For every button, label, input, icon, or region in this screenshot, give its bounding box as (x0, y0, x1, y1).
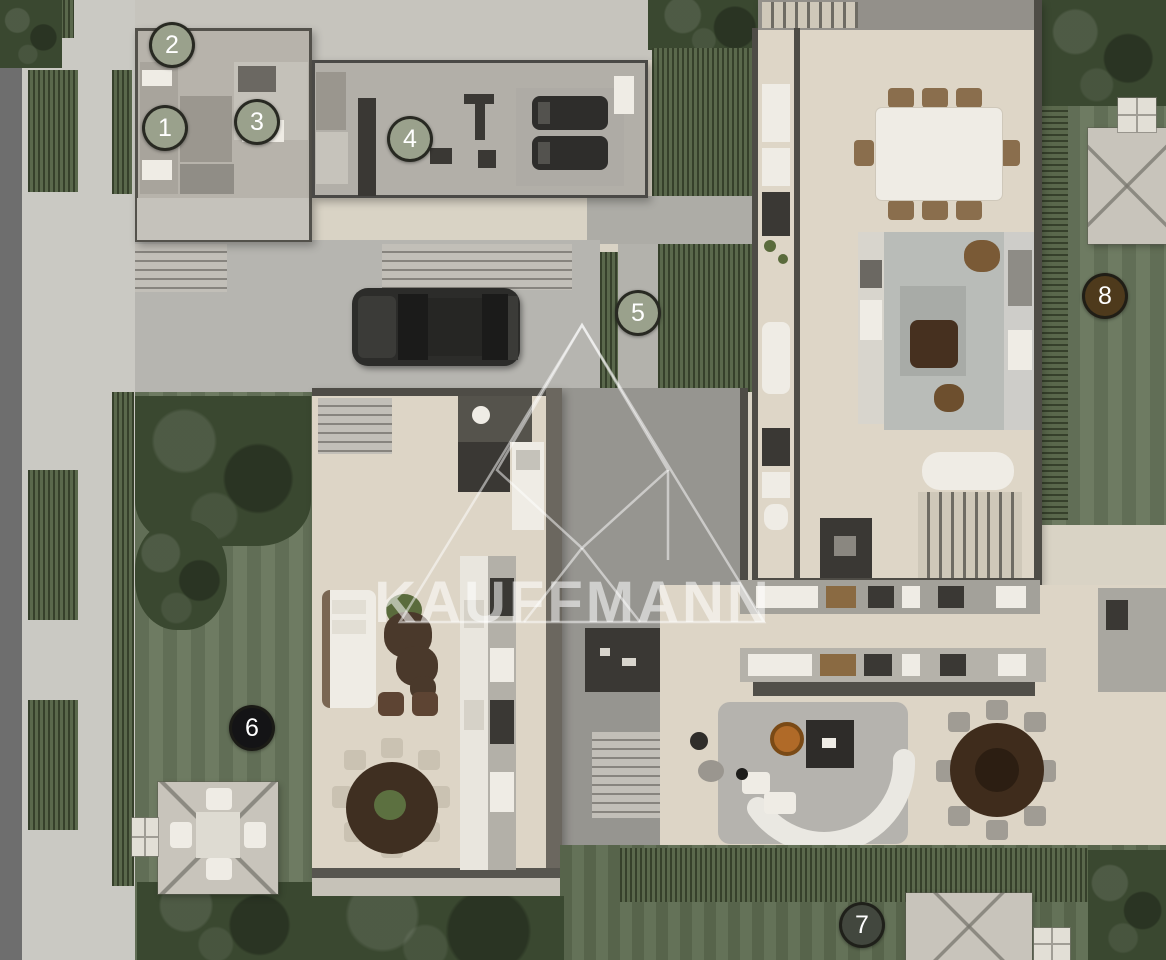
hedge (28, 70, 78, 192)
tree-canopy (1040, 0, 1166, 106)
gate (614, 76, 634, 114)
furniture-block (600, 648, 610, 656)
appliance (820, 654, 856, 676)
sofa-cushion (332, 620, 366, 634)
dining-chair (956, 200, 982, 220)
hedge (658, 244, 758, 392)
dining-chair (381, 738, 403, 758)
dining-chair (418, 750, 440, 770)
hedge (1038, 106, 1068, 520)
sofa-back (322, 590, 330, 708)
marker-2-label: 2 (165, 33, 179, 58)
dining-chair (986, 700, 1008, 720)
pergola-table (196, 812, 240, 858)
gym-equipment-icon (478, 150, 496, 168)
appliance (860, 300, 882, 340)
stairs (135, 244, 227, 292)
wall (358, 98, 376, 196)
wall (740, 388, 748, 600)
wall (794, 28, 800, 585)
counter-item (464, 600, 484, 628)
appliance (902, 586, 920, 608)
appliance (762, 148, 790, 186)
bathroom-block (458, 396, 532, 442)
counter-item (464, 700, 484, 730)
marker-5-label: 5 (631, 301, 645, 326)
toilet (764, 504, 788, 530)
dining-chair (344, 750, 366, 770)
appliance (998, 654, 1026, 676)
marker-6[interactable]: 6 (229, 705, 275, 751)
bushes (312, 896, 564, 960)
wall (312, 388, 562, 396)
street (0, 0, 22, 960)
hedge (652, 48, 758, 196)
dining-table (876, 108, 1002, 200)
appliance (1008, 330, 1032, 370)
appliance (864, 654, 892, 676)
marker-7[interactable]: 7 (839, 902, 885, 948)
parked-car-windshield (538, 102, 550, 124)
pergola (1088, 128, 1166, 244)
dining-chair (986, 820, 1008, 840)
pergola (906, 893, 1032, 960)
sink (472, 406, 490, 424)
wall (753, 682, 1035, 696)
gym-rack-icon (475, 104, 485, 140)
car-windshield (482, 294, 508, 360)
wall (1034, 0, 1042, 588)
dining-chair (1024, 712, 1046, 732)
table-inner (975, 748, 1019, 792)
plant (764, 240, 776, 252)
pergola-chair (206, 788, 232, 810)
appliance (1008, 250, 1032, 306)
room (316, 72, 346, 130)
deck-upper (562, 388, 748, 600)
marker-4[interactable]: 4 (387, 116, 433, 162)
table-decor (822, 738, 836, 748)
dining-chair (854, 140, 874, 166)
appliance (860, 260, 882, 288)
appliance (868, 586, 894, 608)
car-hood (508, 296, 518, 360)
pouf (412, 692, 438, 716)
pergola-chair (206, 858, 232, 880)
pergola-chair (170, 822, 192, 848)
stairs (318, 398, 392, 454)
wall (752, 28, 758, 585)
tree-canopy (135, 520, 227, 630)
pergola-chair (244, 822, 266, 848)
stairs (762, 2, 858, 28)
appliance (762, 84, 790, 142)
garden-table (1034, 928, 1070, 960)
furniture-block (622, 658, 636, 666)
hedge (112, 70, 132, 194)
side-table (698, 760, 724, 782)
fire-pit (770, 722, 804, 756)
closet-block (458, 442, 510, 492)
wall (546, 388, 562, 880)
car-roof (428, 298, 482, 356)
appliance (762, 192, 790, 236)
marker-6-label: 6 (245, 716, 259, 741)
marker-3-label: 3 (250, 110, 264, 135)
appliance (826, 586, 856, 608)
appliance (490, 700, 514, 744)
car-rear-window (398, 294, 428, 360)
furniture-block (516, 450, 540, 470)
parked-car-windshield (538, 142, 550, 164)
marker-3[interactable]: 3 (234, 99, 280, 145)
appliance (748, 654, 812, 676)
hallway (180, 164, 234, 194)
pouf (378, 692, 404, 716)
dining-chair (888, 88, 914, 108)
marker-4-label: 4 (403, 127, 417, 152)
marker-5[interactable]: 5 (615, 290, 661, 336)
plant (778, 254, 788, 264)
appliance (762, 428, 790, 466)
stairs (592, 732, 668, 818)
appliance (1106, 600, 1128, 630)
elevator-panel (834, 536, 856, 556)
side-table (690, 732, 708, 750)
appliance (938, 586, 964, 608)
room (316, 132, 348, 184)
dining-chair (888, 200, 914, 220)
appliance (490, 772, 514, 812)
sofa-cushion (332, 600, 366, 614)
site-plan: KAUFFMANN 1 2 3 4 5 6 7 8 (0, 0, 1166, 960)
dining-chair (1024, 806, 1046, 826)
appliance (996, 586, 1026, 608)
marker-1[interactable]: 1 (142, 105, 188, 151)
hedge (112, 392, 134, 886)
stairs (918, 492, 1022, 578)
car-trunk (358, 296, 396, 358)
garden-path (587, 196, 758, 244)
bathtub (762, 322, 790, 394)
appliance (902, 654, 920, 676)
dining-chair (922, 88, 948, 108)
dining-chair (956, 88, 982, 108)
garden-bench (132, 818, 158, 856)
marker-8-label: 8 (1098, 284, 1112, 309)
hedge (28, 470, 78, 620)
dining-chair (922, 200, 948, 220)
armchair (764, 792, 796, 814)
dining-chair (1000, 140, 1020, 166)
furniture-block (142, 70, 172, 86)
furniture-block (238, 66, 276, 92)
stairs (382, 244, 572, 290)
wood-stool (934, 384, 964, 412)
dining-chair (948, 806, 970, 826)
appliance (490, 648, 514, 682)
wood-stool (964, 240, 1000, 272)
terrace (137, 198, 309, 240)
marker-2[interactable]: 2 (149, 22, 195, 68)
dining-chair (948, 712, 970, 732)
furniture-block (142, 160, 172, 180)
marker-7-label: 7 (855, 913, 869, 938)
marker-1-label: 1 (158, 116, 172, 141)
appliance (940, 654, 966, 676)
breakfast-table (910, 320, 958, 368)
table-centerpiece-plant (374, 790, 406, 820)
tree-canopy (1088, 850, 1166, 960)
bathtub (922, 452, 1014, 490)
sink (762, 472, 790, 498)
hedge (28, 700, 78, 830)
stool (736, 768, 748, 780)
appliance (490, 578, 514, 616)
gym-rack-icon (464, 94, 494, 104)
garden-table (1118, 98, 1156, 132)
furniture-block (430, 148, 452, 164)
appliance (756, 586, 818, 608)
marker-8[interactable]: 8 (1082, 273, 1128, 319)
tree-canopy (0, 0, 62, 68)
